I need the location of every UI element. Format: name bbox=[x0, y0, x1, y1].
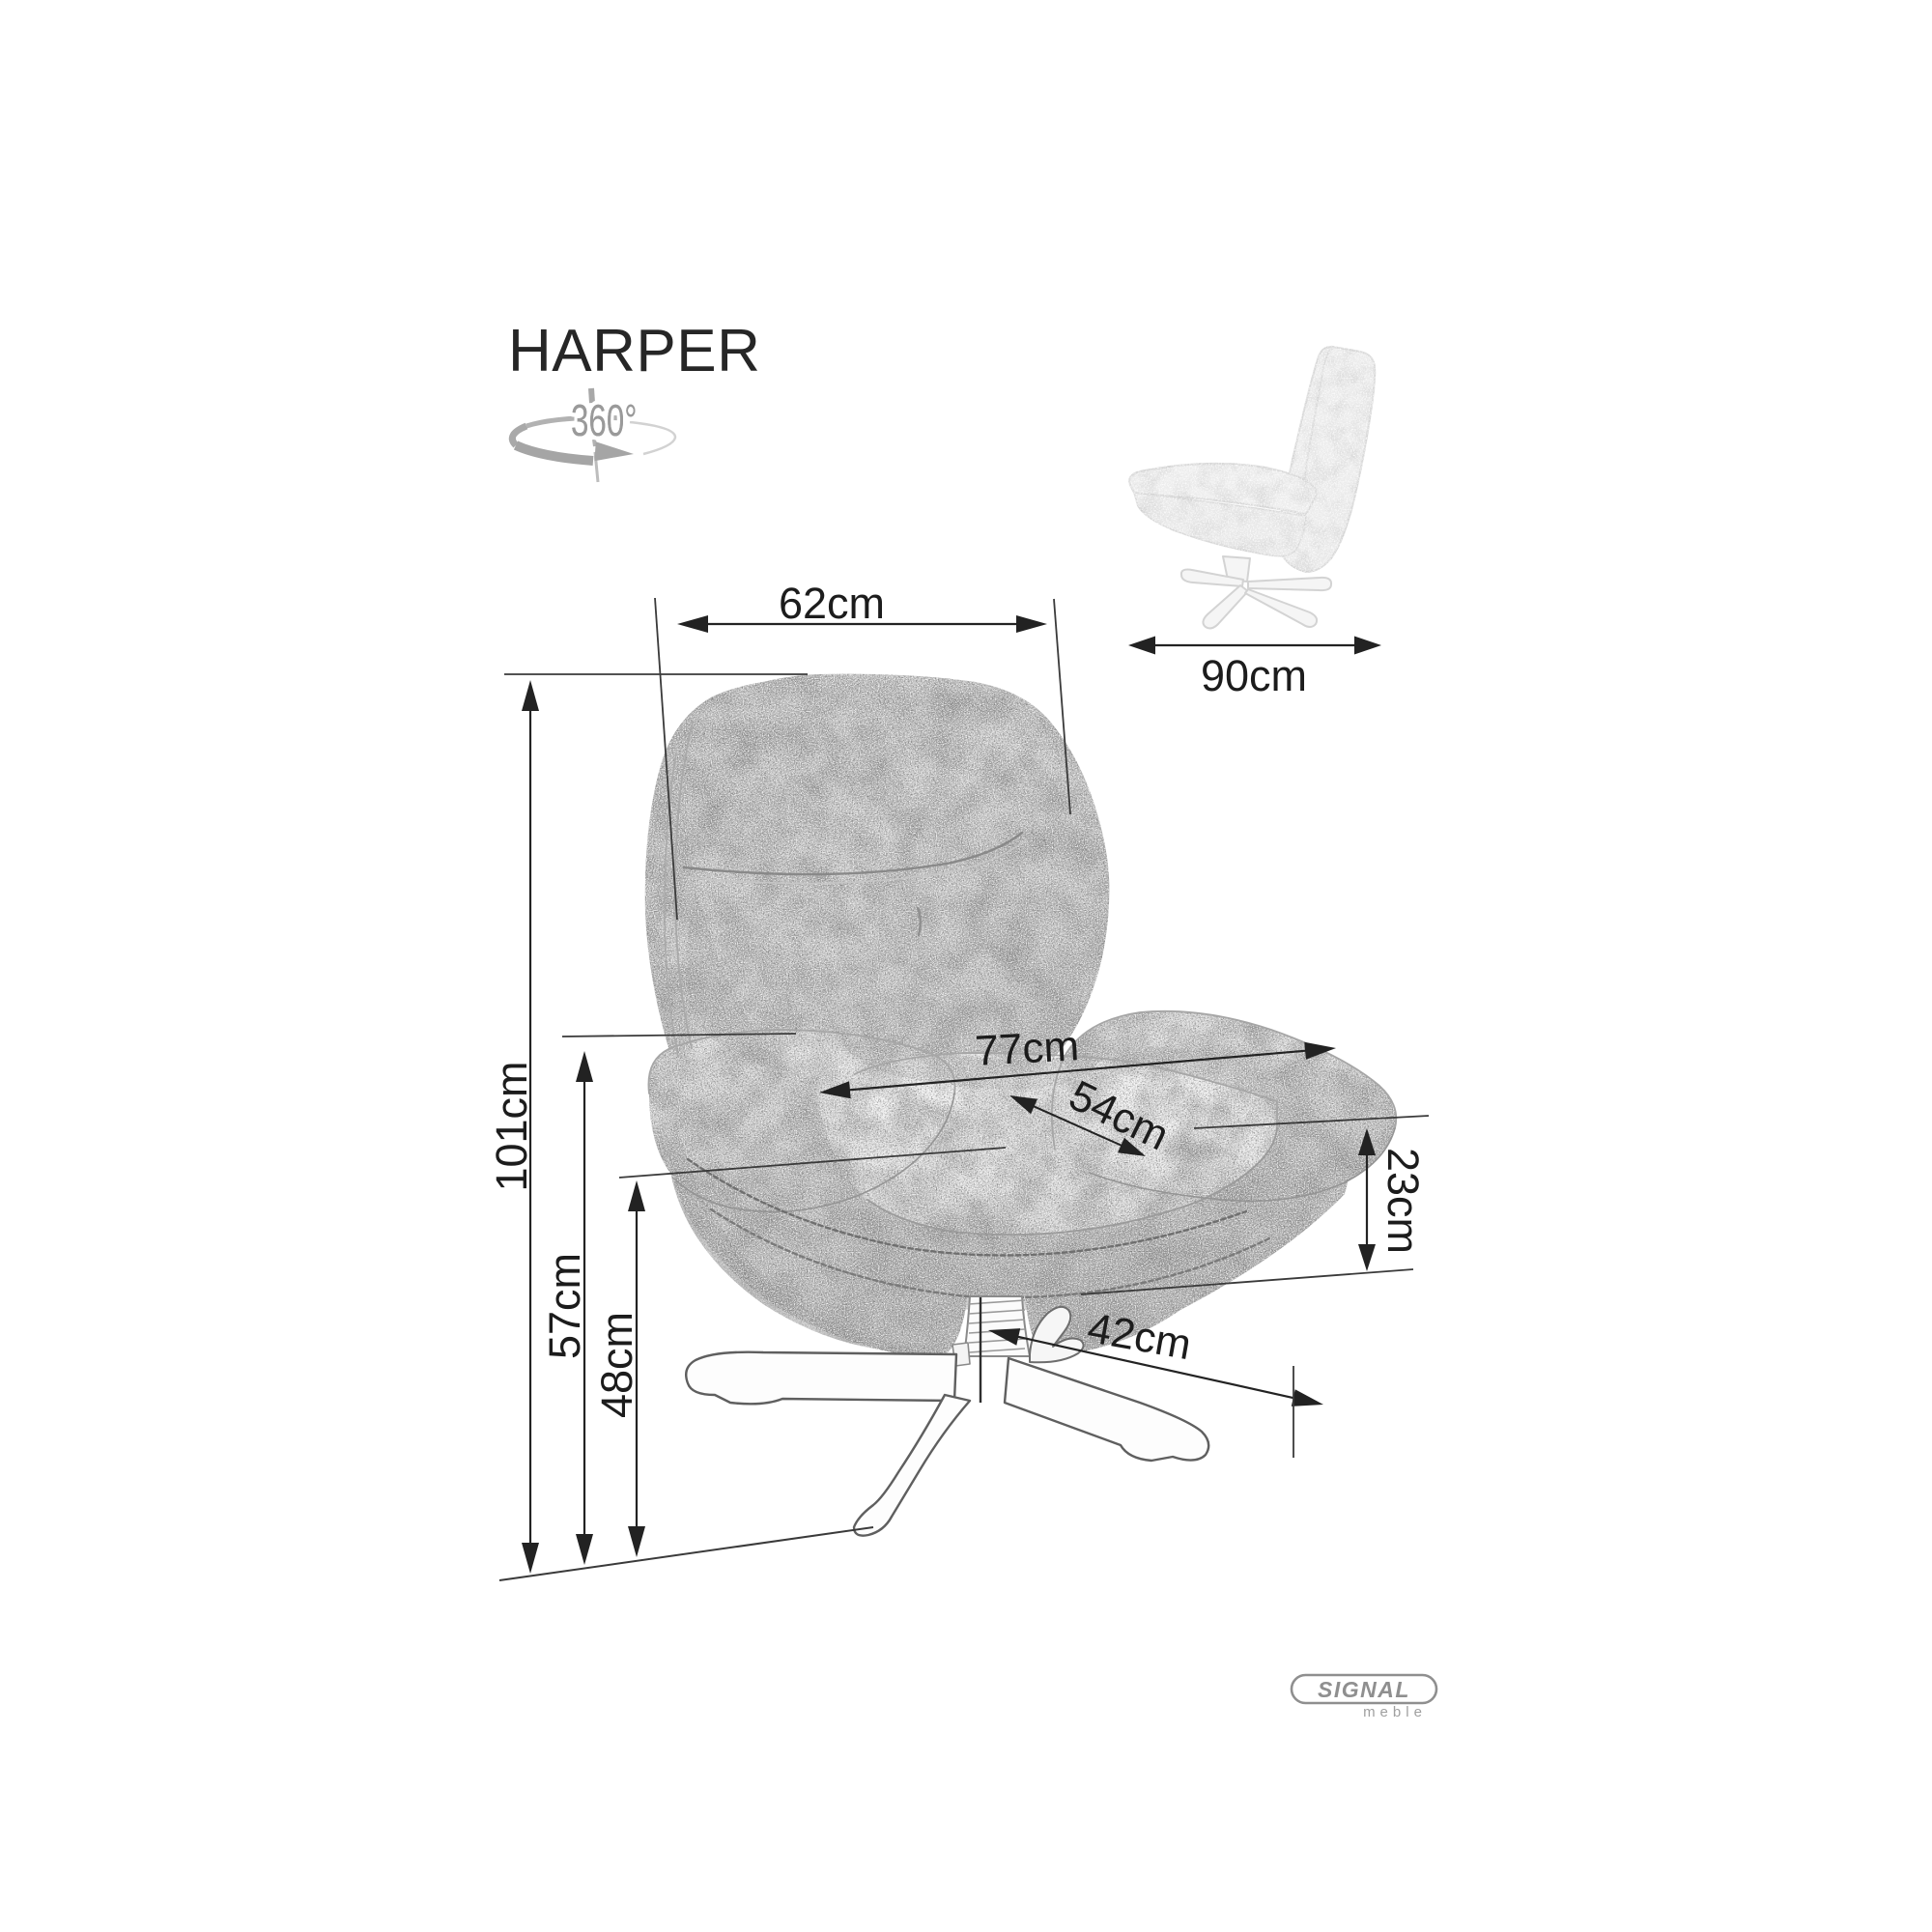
svg-text:90cm: 90cm bbox=[1201, 651, 1307, 700]
svg-text:meble: meble bbox=[1363, 1704, 1427, 1720]
svg-text:HARPER: HARPER bbox=[508, 318, 760, 384]
svg-text:42cm: 42cm bbox=[1084, 1304, 1194, 1369]
svg-text:77cm: 77cm bbox=[974, 1022, 1080, 1075]
svg-text:360°: 360° bbox=[571, 397, 638, 445]
svg-text:57cm: 57cm bbox=[540, 1253, 589, 1359]
svg-text:SIGNAL: SIGNAL bbox=[1318, 1677, 1410, 1702]
svg-text:62cm: 62cm bbox=[779, 579, 885, 628]
svg-text:48cm: 48cm bbox=[592, 1312, 641, 1418]
svg-text:23cm: 23cm bbox=[1378, 1148, 1428, 1254]
svg-text:101cm: 101cm bbox=[487, 1061, 536, 1191]
